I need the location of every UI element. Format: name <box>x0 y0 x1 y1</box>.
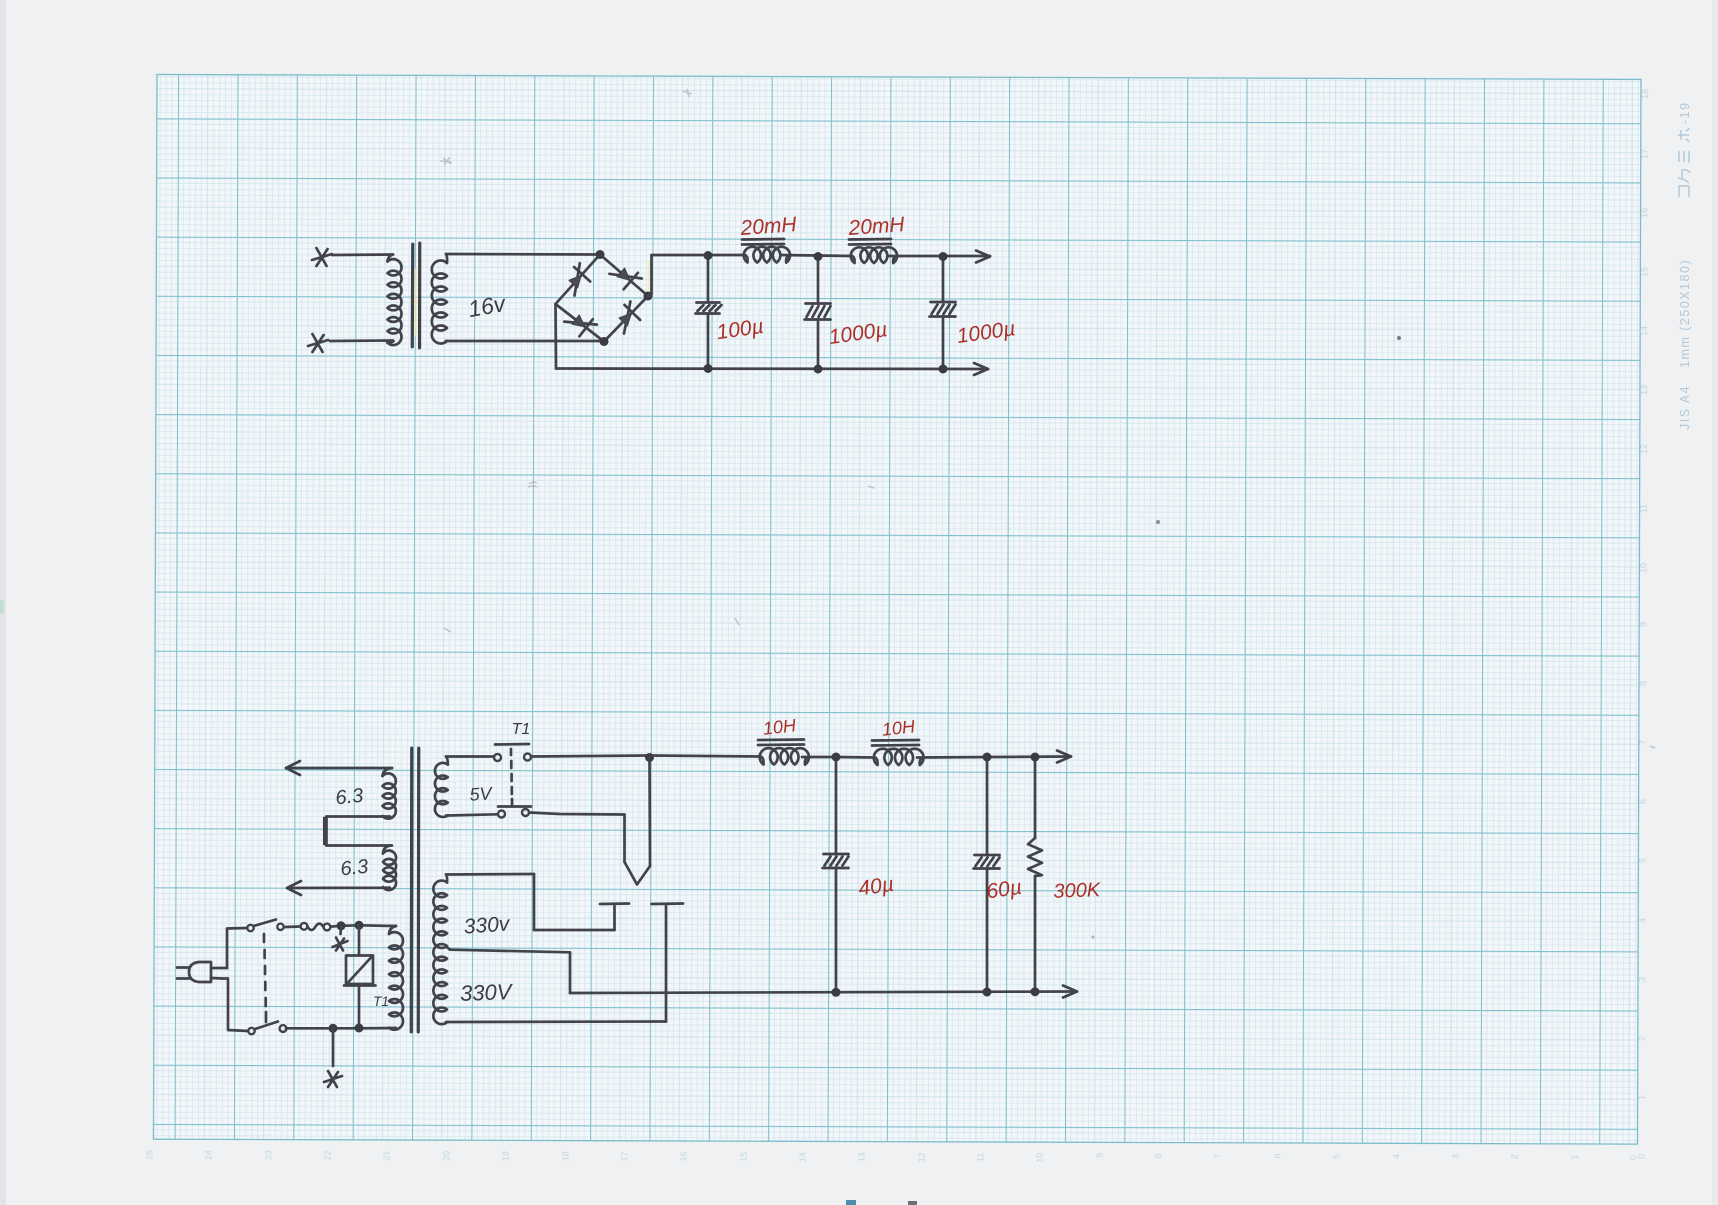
svg-text:24: 24 <box>203 1150 213 1160</box>
svg-text:16: 16 <box>1640 208 1650 218</box>
svg-text:0: 0 <box>1636 1154 1646 1159</box>
svg-text:14: 14 <box>1639 326 1649 336</box>
svg-text:5V: 5V <box>469 783 494 805</box>
svg-text:6.3: 6.3 <box>339 856 369 881</box>
svg-text:11: 11 <box>1639 504 1649 513</box>
svg-text:13: 13 <box>1639 385 1649 395</box>
svg-text:18: 18 <box>1640 89 1650 99</box>
svg-text:3: 3 <box>1450 1154 1460 1159</box>
svg-text:8: 8 <box>1638 681 1648 686</box>
svg-text:15: 15 <box>738 1152 748 1162</box>
svg-text:300K: 300K <box>1053 879 1102 903</box>
svg-text:17: 17 <box>619 1151 629 1161</box>
svg-text:330v: 330v <box>463 912 512 938</box>
svg-text:1: 1 <box>1637 1095 1647 1100</box>
svg-text:5: 5 <box>1331 1154 1341 1159</box>
svg-text:25: 25 <box>144 1150 154 1160</box>
svg-text:60µ: 60µ <box>985 876 1023 904</box>
svg-text:5: 5 <box>1637 858 1647 863</box>
svg-text:21: 21 <box>381 1151 391 1161</box>
svg-text:9: 9 <box>1638 622 1648 627</box>
svg-text:40µ: 40µ <box>857 873 895 901</box>
svg-text:6: 6 <box>1272 1154 1282 1159</box>
svg-text:13: 13 <box>856 1152 866 1162</box>
svg-text:19: 19 <box>500 1151 510 1161</box>
svg-text:10: 10 <box>1034 1153 1044 1163</box>
svg-text:1: 1 <box>1569 1155 1579 1160</box>
svg-text:22: 22 <box>322 1150 332 1160</box>
svg-text:-19: -19 <box>1678 101 1692 124</box>
svg-text:T1: T1 <box>373 994 389 1009</box>
svg-text:14: 14 <box>797 1152 807 1162</box>
svg-text:20mH: 20mH <box>847 213 906 240</box>
svg-text:20mH: 20mH <box>739 213 798 240</box>
svg-text:330V: 330V <box>460 979 515 1006</box>
svg-text:17: 17 <box>1640 149 1650 159</box>
svg-text:20: 20 <box>441 1151 451 1161</box>
svg-text:3: 3 <box>1637 977 1647 982</box>
svg-text:T1: T1 <box>512 721 531 738</box>
svg-text:JIS A4: JIS A4 <box>1678 385 1692 430</box>
svg-text:10: 10 <box>1638 563 1648 573</box>
svg-text:11: 11 <box>975 1153 985 1162</box>
svg-text:2: 2 <box>1637 1036 1647 1041</box>
svg-text:4: 4 <box>1391 1154 1401 1159</box>
svg-text:15: 15 <box>1639 267 1649 277</box>
svg-text:9: 9 <box>1094 1153 1104 1158</box>
svg-text:7: 7 <box>1212 1153 1222 1158</box>
svg-text:1mm (250X180): 1mm (250X180) <box>1678 259 1692 368</box>
svg-text:12: 12 <box>916 1152 926 1162</box>
svg-text:12: 12 <box>1639 444 1649 454</box>
svg-text:4: 4 <box>1637 918 1647 923</box>
svg-text:7: 7 <box>1638 740 1648 745</box>
svg-text:16: 16 <box>678 1152 688 1162</box>
svg-text:10H: 10H <box>762 715 798 738</box>
svg-text:18: 18 <box>560 1151 570 1161</box>
svg-text:6: 6 <box>1638 799 1648 804</box>
svg-text:2: 2 <box>1509 1154 1519 1159</box>
svg-text:10H: 10H <box>881 716 917 739</box>
svg-text:23: 23 <box>263 1150 273 1160</box>
svg-text:8: 8 <box>1153 1153 1163 1158</box>
svg-text:6.3: 6.3 <box>334 785 364 810</box>
